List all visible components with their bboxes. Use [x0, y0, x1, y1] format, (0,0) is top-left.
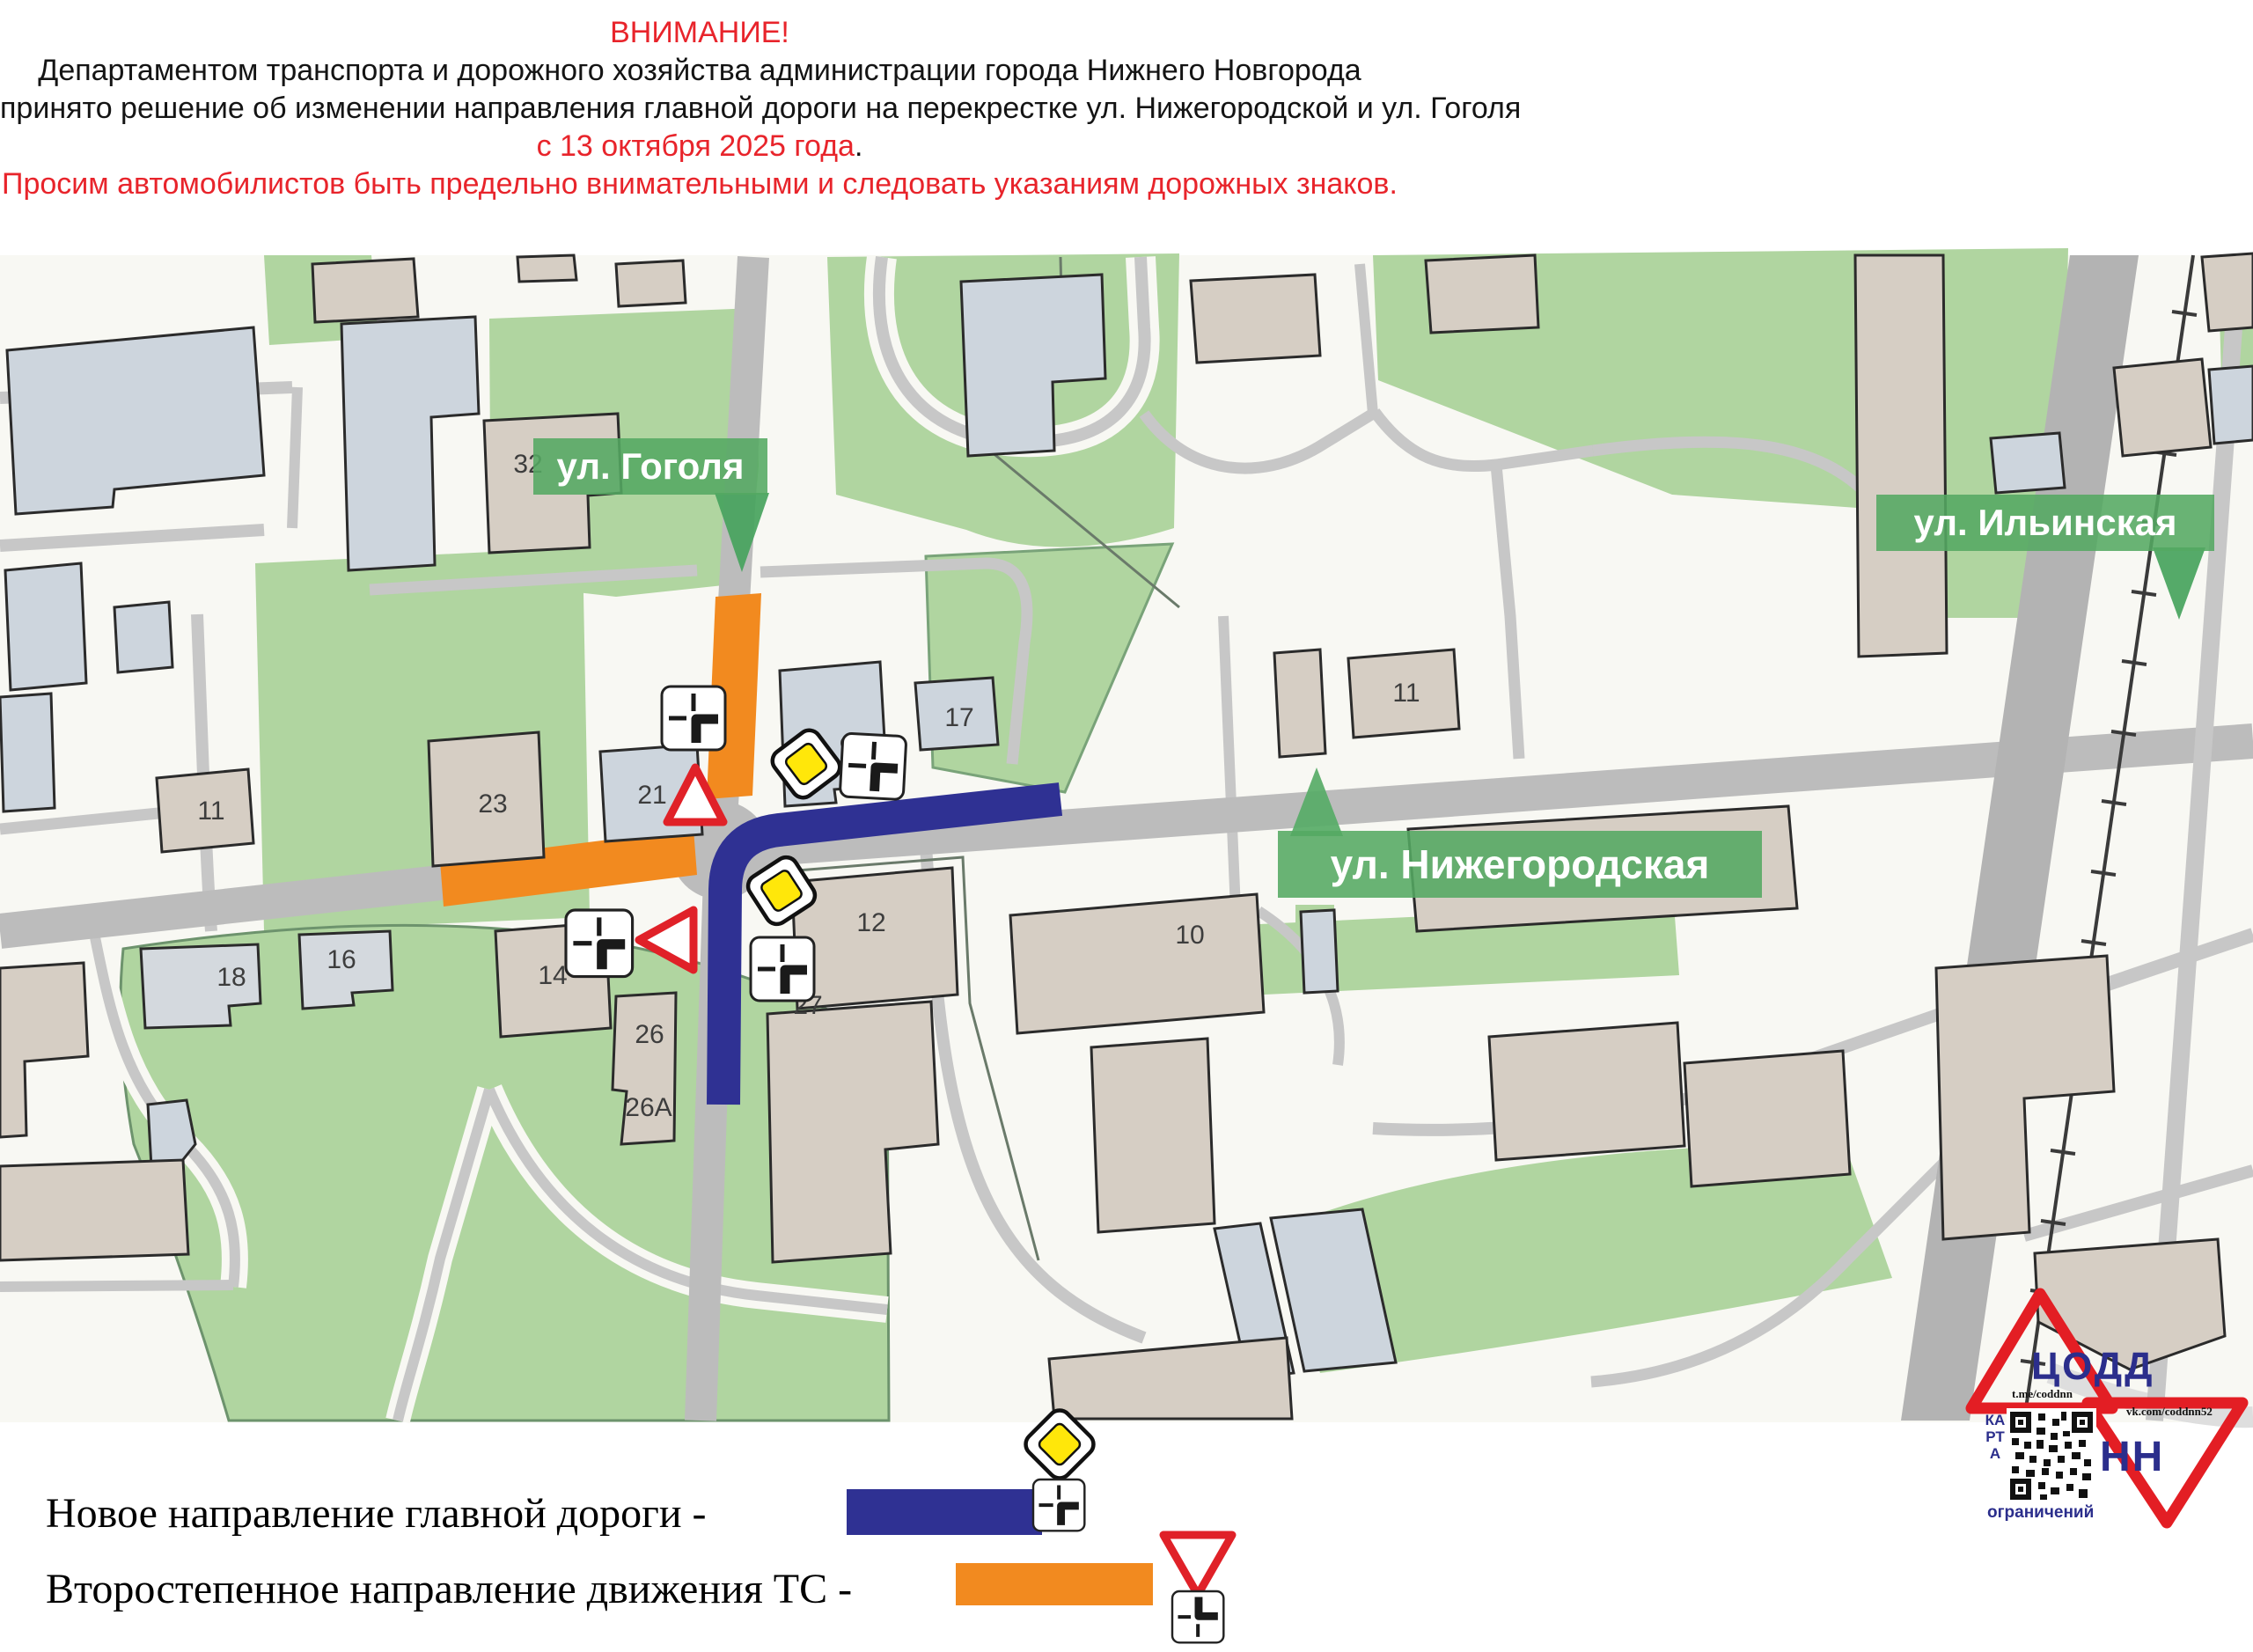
- legend-secondary-route-label: Второстепенное направление движения ТС -: [46, 1565, 852, 1613]
- building-number: 17: [944, 703, 973, 732]
- building-number: 23: [478, 789, 507, 819]
- priority-direction-sign-se: [751, 937, 814, 1001]
- building-number: 11: [197, 797, 224, 826]
- header-date-line: с 13 октября 2025 года.: [0, 128, 1399, 165]
- header-warning: Просим автомобилистов быть предельно вни…: [0, 165, 1399, 203]
- street-label-ilinskaya: ул. Ильинская: [1876, 495, 2214, 551]
- qr-code: [2007, 1408, 2096, 1503]
- building-number: 16: [327, 945, 356, 974]
- building-number: 26А: [625, 1093, 671, 1122]
- legend-graphics: [847, 1406, 1232, 1642]
- building-number: 21: [637, 781, 666, 810]
- header-attention: ВНИМАНИЕ!: [0, 14, 1399, 52]
- legend-main-route-label: Новое направление главной дороги -: [46, 1489, 707, 1538]
- logo-telegram-link: t.me/coddnn: [2012, 1387, 2073, 1401]
- header-line3: принято решение об изменении направления…: [0, 90, 1399, 128]
- logo-city-code: НН: [2100, 1433, 2164, 1481]
- building-12: [792, 868, 958, 1009]
- street-label-gogolya: ул. Гоголя: [533, 438, 767, 495]
- priority-direction-sign-nw: [662, 686, 725, 750]
- city-map: 32 23 21 11 9 17 11 12 10 14 16 18 26 26…: [0, 0, 2253, 1652]
- header-date: с 13 октября 2025 года: [537, 129, 855, 163]
- header-date-period: .: [855, 129, 862, 163]
- announcement-page: 32 23 21 11 9 17 11 12 10 14 16 18 26 26…: [0, 0, 2253, 1652]
- building-number: 10: [1175, 921, 1204, 950]
- building-number: 12: [856, 908, 885, 937]
- logo-vk-link: vk.com/coddnn52: [2126, 1405, 2213, 1419]
- building-10: [1010, 894, 1264, 1033]
- logo-qr-caption-bottom: ограничений: [1987, 1503, 2094, 1523]
- building-number: 14: [538, 961, 567, 990]
- header-block: ВНИМАНИЕ! Департаментом транспорта и дор…: [0, 14, 1399, 203]
- street-label-nizhegorodskaya: ул. Нижегородская: [1278, 831, 1762, 898]
- logo-org-name: ЦОДД: [2031, 1345, 2154, 1389]
- legend-yield-sign: [1163, 1535, 1232, 1595]
- building-number: 18: [216, 963, 246, 992]
- header-line2: Департаментом транспорта и дорожного хоз…: [0, 52, 1399, 90]
- legend-priority-direction-sign-1: [1033, 1479, 1084, 1531]
- logo-qr-caption-vertical: КАРТА: [1984, 1412, 2007, 1462]
- priority-direction-sign-sw: [566, 910, 633, 977]
- legend-main-route-swatch: [847, 1489, 1042, 1535]
- building-number: 11: [1392, 679, 1420, 708]
- legend-priority-direction-sign-2: [1172, 1591, 1223, 1642]
- priority-direction-sign-ne: [840, 733, 906, 800]
- legend-secondary-route-swatch: [956, 1563, 1153, 1605]
- building-number: 26: [635, 1020, 664, 1049]
